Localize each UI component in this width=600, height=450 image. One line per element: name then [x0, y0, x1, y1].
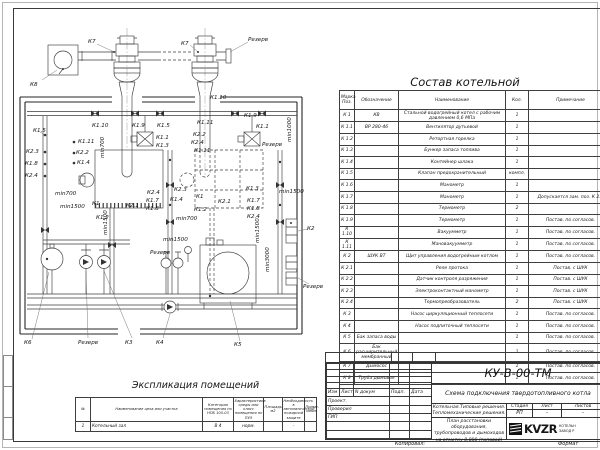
parts-cell: Постав. с ШУК — [529, 274, 600, 286]
table-row: К 1.5Клапан предохранительныйкомпл. — [340, 168, 600, 180]
schematic-label: К1.8 — [247, 206, 260, 212]
schematic-label: К1.4 — [77, 160, 90, 166]
kvzr-logo-icon — [509, 423, 522, 435]
parts-cell — [529, 110, 600, 122]
parts-cell: 1 — [506, 320, 529, 332]
explication-col-header: Площадь, м2 — [264, 398, 283, 422]
parts-cell: К 1.4 — [340, 157, 355, 169]
parts-cell — [355, 262, 399, 274]
table-row: К 1.7Манометр1Допускается зам. поз. К 2.… — [340, 191, 600, 203]
schematic-label: К4 — [156, 340, 164, 346]
parts-cell: 1 — [506, 286, 529, 298]
sheet-title: План расстановки оборудования, трубопров… — [432, 418, 506, 438]
schematic-label: К1.9 — [244, 113, 257, 119]
schematic-label: К1.5 — [157, 123, 170, 129]
parts-cell: Постав. по согласов. — [529, 320, 600, 332]
parts-cell: 1 — [506, 145, 529, 157]
titleblock-columns-row: Изм Лист N докум Подп. Дата — [327, 389, 432, 397]
sheets-value: - — [562, 410, 600, 417]
table-row: К 1.8Термометр2 — [340, 203, 600, 215]
col-ndocum: N докум — [354, 389, 390, 397]
parts-cell: К 5 — [340, 332, 355, 344]
parts-cell: 1 — [506, 274, 529, 286]
parts-cell: Постав. по согласов. — [529, 332, 600, 344]
parts-cell: Клапан предохранительный — [399, 168, 506, 180]
schematic-label: К5 — [234, 342, 242, 348]
parts-cell: Термометр — [399, 215, 506, 227]
schematic-label: К1.11 — [197, 120, 213, 126]
parts-cell: 1 — [506, 191, 529, 203]
parts-cell — [529, 157, 600, 169]
schematic-label: К1.7 — [146, 198, 159, 204]
schematic-label: К2 — [307, 226, 315, 232]
col-podp: Подп. — [390, 389, 410, 397]
parts-cell: Термопреобразователь — [399, 297, 506, 309]
sheet-value: - — [533, 410, 562, 417]
parts-cell — [355, 157, 399, 169]
parts-cell: К 1.9 — [340, 215, 355, 227]
schematic-label: К2.1 — [218, 199, 231, 205]
table-row: К 1.4Контейнер шлака1 — [340, 157, 600, 169]
parts-cell — [529, 180, 600, 192]
title-block: Изм Лист N докум Подп. Дата Проект. Пров… — [325, 362, 600, 440]
explication-cell: - — [283, 421, 305, 431]
parts-cell — [355, 191, 399, 203]
schematic-label: К2.4 — [25, 173, 38, 179]
schematic-label: К1.1 — [156, 135, 169, 141]
parts-cell: 2 — [506, 297, 529, 309]
boiler-1 — [79, 150, 163, 294]
scheme-name: Схема подключения твердотопливного котла — [432, 384, 600, 404]
schematic-label: К2.3 — [26, 149, 39, 155]
parts-cell: Постав. по согласов. — [529, 309, 600, 321]
parts-cell — [529, 168, 600, 180]
schematic-label: К1 — [92, 201, 100, 207]
drawing-sheet: К8К7К7РезервК1.10К1.9К1.5К1.11К1.10К1.9К… — [0, 0, 600, 450]
schematic-label: К1.10 — [92, 123, 109, 129]
explication-col-header: Наименование цеха или участка — [91, 398, 203, 422]
copied-label: Копировал: — [330, 441, 490, 447]
schematic-labels: К8К7К7РезервК1.10К1.9К1.5К1.11К1.10К1.9К… — [24, 37, 323, 348]
role-checker: Проверил — [327, 405, 390, 413]
parts-cell: 1 — [506, 133, 529, 145]
project-name: Котельная.Типовые решения. Тепломеханиче… — [432, 404, 507, 439]
parts-cell — [355, 239, 399, 251]
parts-table-body: К 1КВСтальной водогрейный котел с рабочи… — [340, 110, 600, 385]
parts-cell: Вентилятор дутьевой — [399, 122, 506, 134]
document-number: КУ-В-00-ТМ — [432, 363, 600, 384]
parts-cell — [355, 286, 399, 298]
schematic-label: К1.11 — [78, 139, 94, 145]
parts-cell: Ретортная горелка — [399, 133, 506, 145]
parts-cell — [355, 145, 399, 157]
side-stamp — [3, 355, 13, 440]
stage-block: Стадия Лист Листов РП - - KVZR — [507, 404, 600, 439]
col-header-qty: Кол. — [506, 91, 529, 110]
parts-cell — [529, 145, 600, 157]
explication-table: №Наименование цеха или участкаКатегория … — [75, 397, 317, 432]
schematic-label: К7 — [88, 39, 96, 45]
parts-table-title: Состав котельной — [340, 75, 590, 89]
titleblock-signature-grid: Изм Лист N докум Подп. Дата Проект. Пров… — [326, 363, 432, 439]
parts-cell: Электроконтактный манометр — [399, 286, 506, 298]
parts-cell: К 1.5 — [340, 168, 355, 180]
explication-cell: Котельный зал — [91, 421, 203, 431]
schematic-label: К8 — [30, 82, 38, 88]
parts-cell: Манометр — [399, 180, 506, 192]
table-row: К 3Насос циркуляционный теплосети1Постав… — [340, 309, 600, 321]
explication-cell: норм. — [234, 421, 264, 431]
object-line2: Тепломеханические решения. — [432, 411, 505, 416]
parts-cell: К 1.11 — [340, 239, 355, 251]
explication-cell: В 4 — [203, 421, 234, 431]
table-row: К 5Бак запаса воды1Постав. по согласов. — [340, 332, 600, 344]
parts-cell: 1 — [506, 215, 529, 227]
schematic-label: min3000 — [265, 247, 271, 272]
parts-cell: Постав. по согласов. — [529, 239, 600, 251]
table-row: К 2.1Реле протока1Постав. с ШУК — [340, 262, 600, 274]
parts-cell: Допускается зам. поз. К 2.3 — [529, 191, 600, 203]
schematic-label: К7 — [181, 41, 189, 47]
format-label: Формат — [558, 441, 578, 447]
parts-cell: Стальной водогрейный котел с рабочим дав… — [399, 110, 506, 122]
parts-cell — [399, 332, 506, 344]
parts-cell: ШУК ВТ — [355, 251, 399, 263]
parts-cell: Насос подпиточный теплосети — [399, 320, 506, 332]
schematic-label: Резерв — [78, 340, 98, 346]
table-row: К 2.3Электроконтактный манометр1Постав. … — [340, 286, 600, 298]
schematic-label: К1.4 — [170, 197, 183, 203]
parts-cell: К 1 — [340, 110, 355, 122]
schematic-label: К1.11 — [194, 148, 210, 154]
parts-cell: 1 — [506, 309, 529, 321]
explication-col-header: № — [76, 398, 91, 422]
parts-cell — [355, 215, 399, 227]
explication-cell — [305, 421, 317, 431]
col-header-name: Наименование — [399, 91, 506, 110]
parts-cell: К 1.6 — [340, 180, 355, 192]
col-header-designation: Обозначение — [355, 91, 399, 110]
schematic-label: min1500 — [279, 189, 304, 195]
schematic-label: min1500 — [163, 237, 188, 243]
parts-cell: Мановакуумметр — [399, 239, 506, 251]
boiler-2-reserve — [180, 150, 263, 294]
schematic-label: К1.5 — [33, 128, 46, 134]
parts-cell: К 1.8 — [340, 203, 355, 215]
draft-fan-1 — [131, 116, 153, 147]
role-designer: Проект. — [327, 397, 390, 405]
table-row: К 2.2Датчик контроля разряжения1Постав. … — [340, 274, 600, 286]
table-row: К 2ШУК ВТЩит управления водогрейным котл… — [340, 251, 600, 263]
parts-cell: К 2.1 — [340, 262, 355, 274]
parts-cell: Бункер запаса топлива — [399, 145, 506, 157]
table-row: К 2.4Термопреобразователь2Постав. с ШУК — [340, 297, 600, 309]
parts-cell — [529, 133, 600, 145]
parts-cell: Постав. по согласов. — [529, 226, 600, 238]
schematic-label: Резерв — [303, 284, 323, 290]
parts-cell: 1 — [506, 226, 529, 238]
schematic-label: К1.8 — [146, 206, 159, 212]
parts-cell: 1 — [506, 110, 529, 122]
schematic-label: min700 — [100, 136, 106, 158]
table-row: 1Котельный залВ 4норм.- — [76, 421, 317, 431]
explication-title: Экспликация помещений — [75, 380, 316, 391]
col-header-mark: Марка Поз. — [340, 91, 355, 110]
table-row: К 1.1ВР 280-46Вентилятор дутьевой1 — [340, 122, 600, 134]
parts-cell — [355, 168, 399, 180]
schematic-label: К1.10 — [210, 95, 227, 101]
table-row: К 1.2Ретортная горелка1 — [340, 133, 600, 145]
schematic-label: К2.2 — [76, 150, 89, 156]
table-row: К 1.9Термометр1Постав. по согласов. — [340, 215, 600, 227]
logo-text: KVZR — [524, 422, 557, 436]
schematic-label: Резерв — [248, 37, 268, 43]
parts-cell — [355, 226, 399, 238]
parts-cell: Постав. с ШУК — [529, 286, 600, 298]
schematic-label: К6 — [24, 340, 32, 346]
parts-cell: Постав. с ШУК — [529, 262, 600, 274]
object-line1: Котельная.Типовые решения. — [433, 405, 505, 410]
schematic-label: К2.1 — [126, 203, 139, 209]
parts-cell: Постав. по согласов. — [529, 251, 600, 263]
schematic-label: К1.3 — [156, 143, 169, 149]
role-gip: ГИП — [327, 414, 390, 422]
parts-cell — [529, 203, 600, 215]
schematic-label: К1.1 — [256, 124, 269, 130]
parts-cell: Контейнер шлака — [399, 157, 506, 169]
parts-cell: К 1.7 — [340, 191, 355, 203]
parts-cell: Бак запаса воды — [355, 332, 399, 344]
table-row: К 1.11Мановакуумметр1Постав. по согласов… — [340, 239, 600, 251]
circulation-pumps — [80, 244, 111, 294]
parts-cell: 1 — [506, 251, 529, 263]
schematic-label: К1.7 — [247, 198, 260, 204]
reserve-panels — [286, 256, 297, 285]
water-tank — [200, 238, 256, 309]
schematic-label: К2.4 — [191, 140, 204, 146]
parts-cell: К 2.2 — [340, 274, 355, 286]
parts-cell: Вакуумметр — [399, 226, 506, 238]
parts-cell — [355, 203, 399, 215]
parts-cell: 2 — [506, 203, 529, 215]
table-row: К 1.6Манометр1 — [340, 180, 600, 192]
explication-body: 1Котельный залВ 4норм.- — [76, 421, 317, 431]
explication-col-header: Характеристика среды или класс помещения… — [234, 398, 264, 422]
schematic-label: min700 — [55, 191, 77, 197]
col-list: Лист — [340, 389, 354, 397]
parts-cell: Реле протока — [399, 262, 506, 274]
parts-cell — [355, 133, 399, 145]
col-data: Дата — [410, 389, 432, 397]
table-row: К 1.3Бункер запаса топлива1 — [340, 145, 600, 157]
parts-cell: 1 — [506, 157, 529, 169]
schematic-label: К3 — [125, 340, 133, 346]
schematic-label: К1.8 — [25, 161, 38, 167]
schematic-label: min1500 — [60, 204, 85, 210]
parts-cell: Щит управления водогрейным котлом — [399, 251, 506, 263]
parts-cell — [355, 274, 399, 286]
smoke-exhauster — [48, 45, 78, 75]
schematic-label: К1.3 — [246, 186, 259, 192]
stage-value: РП — [507, 410, 533, 417]
parts-cell: К 2 — [340, 251, 355, 263]
explication-cell: 1 — [76, 421, 91, 431]
parts-table: Марка Поз. Обозначение Наименование Кол.… — [339, 90, 600, 385]
parts-cell: К 2.4 — [340, 297, 355, 309]
parts-cell: 1 — [506, 122, 529, 134]
table-row: К 1КВСтальной водогрейный котел с рабочи… — [340, 110, 600, 122]
titleblock-right: КУ-В-00-ТМ Схема подключения твердотопли… — [431, 363, 600, 439]
parts-cell: Термометр — [399, 203, 506, 215]
parts-cell — [355, 320, 399, 332]
schematic-label: Резерв — [150, 250, 170, 256]
parts-cell — [529, 122, 600, 134]
parts-cell: Насос циркуляционный теплосети — [399, 309, 506, 321]
parts-cell — [355, 309, 399, 321]
parts-cell: 1 — [506, 180, 529, 192]
parts-cell: Постав. с ШУК — [529, 297, 600, 309]
parts-cell: компл. — [506, 168, 529, 180]
parts-cell: 1 — [506, 332, 529, 344]
schematic-label: Резерв — [262, 142, 282, 148]
schematic-label: min1000 — [287, 117, 293, 142]
parts-cell: К 1.10 — [340, 226, 355, 238]
explication-col-header: Необходимость в автоматической пожарной … — [283, 398, 305, 422]
schematic-label: min700 — [176, 216, 198, 222]
schematic-label: min1500 — [255, 218, 261, 243]
schematic-label: К1 — [196, 194, 204, 200]
col-header-note: Примечание — [529, 91, 600, 110]
col-izm: Изм — [327, 389, 340, 397]
parts-cell: К 1.3 — [340, 145, 355, 157]
schematic-label: К2.3 — [174, 187, 187, 193]
parts-header-row: Марка Поз. Обозначение Наименование Кол.… — [340, 91, 600, 110]
company-logo: KVZR КОТЕЛЬН ЗАВОД Р — [507, 418, 600, 439]
schematic-label: К2.4 — [147, 190, 160, 196]
parts-cell: К 3 — [340, 309, 355, 321]
parts-cell: К 1.1 — [340, 122, 355, 134]
parts-cell: К 4 — [340, 320, 355, 332]
expansion-tank — [41, 244, 63, 294]
parts-cell: ВР 280-46 — [355, 122, 399, 134]
parts-cell: К 1.2 — [340, 133, 355, 145]
table-row: К 1.10Вакуумметр1Постав. по согласов. — [340, 226, 600, 238]
schematic-label: К2.2 — [193, 132, 206, 138]
parts-cell: К 2.3 — [340, 286, 355, 298]
parts-cell: Манометр — [399, 191, 506, 203]
schematic-label: К1.2 — [194, 207, 207, 213]
parts-cell: 1 — [506, 239, 529, 251]
schematic-label: min1500 — [103, 210, 109, 235]
parts-cell — [355, 180, 399, 192]
company-name: КОТЕЛЬН ЗАВОД Р — [559, 424, 576, 433]
parts-cell: 1 — [506, 262, 529, 274]
explication-cell — [264, 421, 283, 431]
draft-fan-2 — [238, 116, 260, 147]
explication-header-row: №Наименование цеха или участкаКатегория … — [76, 398, 317, 422]
parts-cell: Датчик контроля разряжения — [399, 274, 506, 286]
parts-cell: Постав. по согласов. — [529, 215, 600, 227]
schematic-drawing: К8К7К7РезервК1.10К1.9К1.5К1.11К1.10К1.9К… — [0, 0, 340, 375]
control-panel — [286, 219, 297, 243]
explication-col-header: Категория помещения по НПБ 105-03 — [203, 398, 234, 422]
parts-cell: КВ — [355, 110, 399, 122]
table-row: К 4Насос подпиточный теплосети1Постав. п… — [340, 320, 600, 332]
parts-cell — [355, 297, 399, 309]
schematic-label: К1.9 — [132, 123, 145, 129]
